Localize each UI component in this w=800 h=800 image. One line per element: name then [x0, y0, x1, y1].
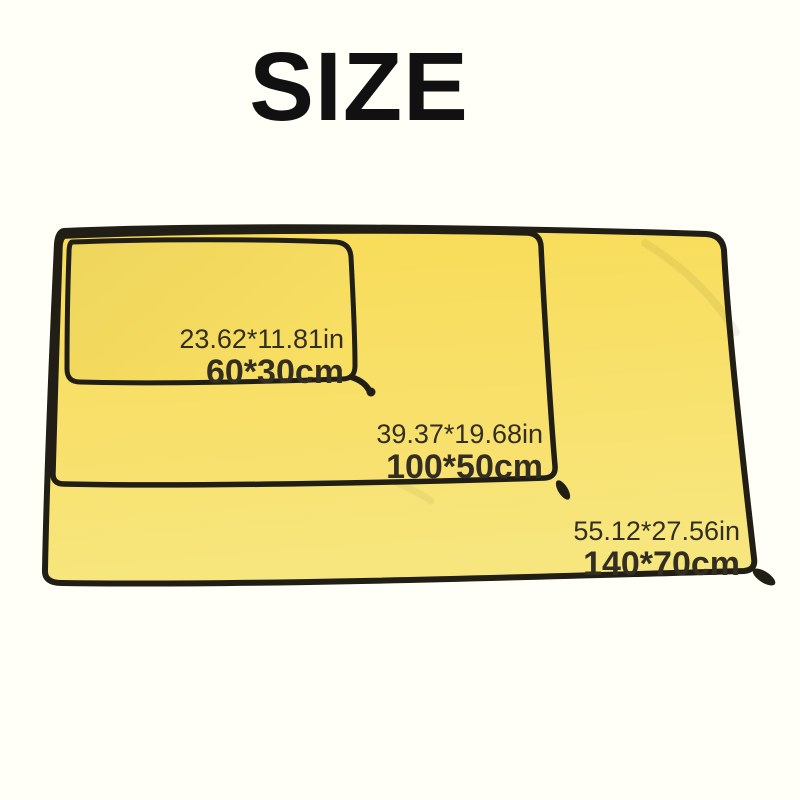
- product-size-chart: SIZE 23.62*11: [0, 0, 800, 800]
- size-large-inches: 55.12*27.56in: [573, 518, 740, 545]
- size-label-medium: 39.37*19.68in 100*50cm: [376, 421, 543, 484]
- size-medium-cm: 100*50cm: [376, 450, 543, 484]
- size-label-small: 23.62*11.81in 60*30cm: [179, 326, 344, 389]
- size-label-large: 55.12*27.56in 140*70cm: [573, 518, 740, 581]
- towel-small-hanging-loop-tip: [367, 388, 376, 397]
- size-small-inches: 23.62*11.81in: [179, 326, 344, 353]
- size-small-cm: 60*30cm: [179, 355, 344, 389]
- size-medium-inches: 39.37*19.68in: [376, 421, 543, 448]
- size-large-cm: 140*70cm: [573, 547, 740, 581]
- towel-size-illustration: [0, 0, 800, 800]
